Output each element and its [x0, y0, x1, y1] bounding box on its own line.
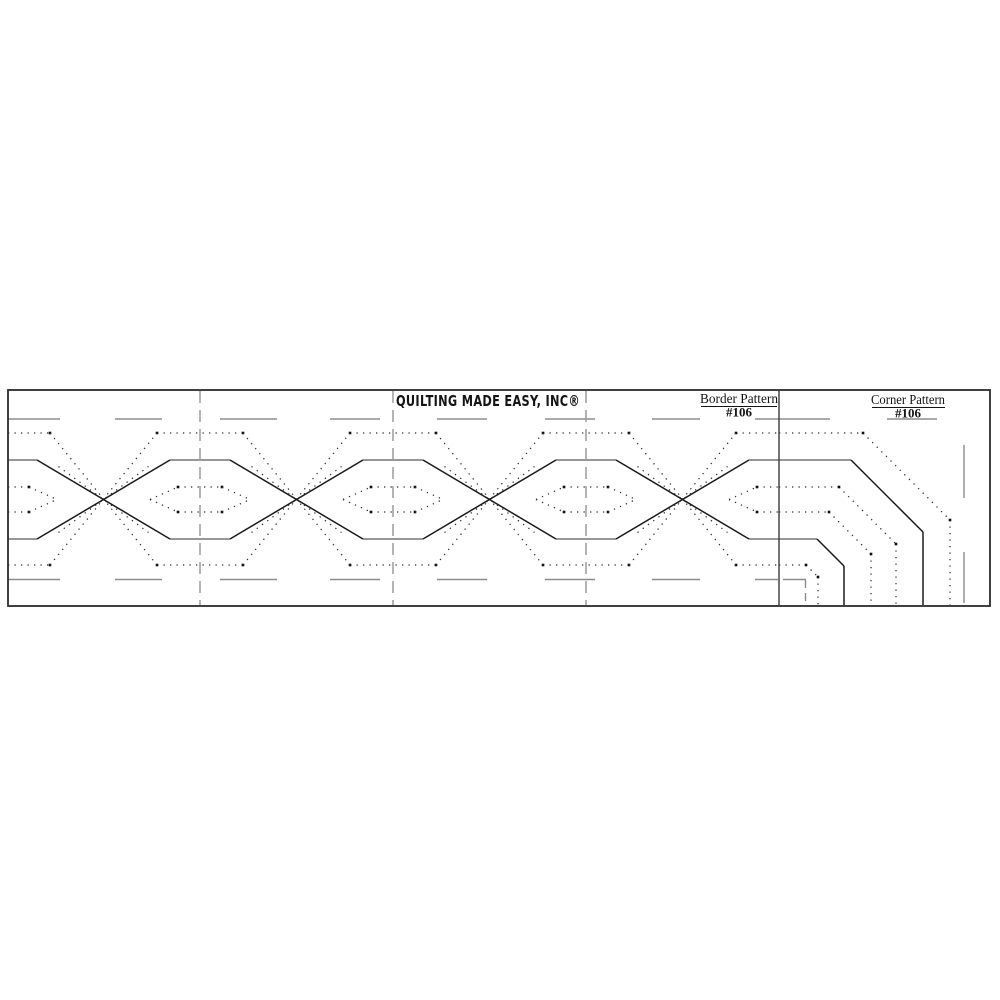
lens-point-edge — [729, 500, 757, 513]
lens-point-edge — [536, 487, 564, 500]
lens-point-edge — [536, 500, 564, 513]
corner-pattern-number: #106 — [895, 406, 922, 421]
corner-chamfer — [817, 539, 844, 566]
lens-point-edge — [222, 487, 250, 500]
stitch-registration-dot — [862, 432, 865, 435]
frame-and-separators-layer — [8, 390, 990, 606]
stitch-registration-dot — [828, 511, 831, 514]
stitch-registration-dot — [817, 576, 820, 579]
brand-title: QUILTING MADE EASY, INC® — [396, 392, 580, 410]
lens-point-edge — [343, 500, 371, 513]
lens-point-edge — [415, 500, 443, 513]
lens-point-edge — [343, 487, 371, 500]
stitch-registration-dot — [805, 564, 808, 567]
lens-point-edge — [729, 487, 757, 500]
stitch-registration-dot — [870, 553, 873, 556]
lens-point-edge — [222, 500, 250, 513]
stencil-frame — [8, 390, 990, 606]
stitch-registration-dot — [370, 511, 373, 514]
lens-point-edge — [29, 500, 57, 513]
lens-point-edge — [150, 500, 178, 513]
corner-chamfer — [863, 433, 950, 520]
border-pattern-number: #106 — [726, 405, 753, 420]
stitch-registration-dot — [177, 511, 180, 514]
stitch-registration-dot — [838, 486, 841, 489]
stitch-registration-dot — [370, 486, 373, 489]
stitch-registration-dot — [949, 519, 952, 522]
stitch-registration-dot — [563, 511, 566, 514]
lens-point-edge — [29, 487, 57, 500]
lens-point-edge — [415, 487, 443, 500]
corner-chamfer — [829, 512, 871, 554]
corner-chamfer — [806, 565, 818, 577]
lens-point-edge — [150, 487, 178, 500]
stencil-sheet-page: QUILTING MADE EASY, INC® Border Pattern … — [0, 0, 1000, 1000]
corner-chamfer — [851, 460, 923, 532]
stitch-registration-dot — [756, 511, 759, 514]
guide-marks-layer — [8, 419, 964, 603]
quilting-stencil-drawing: QUILTING MADE EASY, INC® Border Pattern … — [0, 0, 1000, 1000]
lens-point-edge — [608, 487, 636, 500]
lens-point-edge — [608, 500, 636, 513]
stitch-registration-dot — [177, 486, 180, 489]
stitch-registration-dot — [895, 543, 898, 546]
stitch-registration-dot — [756, 486, 759, 489]
stitch-registration-dot — [563, 486, 566, 489]
